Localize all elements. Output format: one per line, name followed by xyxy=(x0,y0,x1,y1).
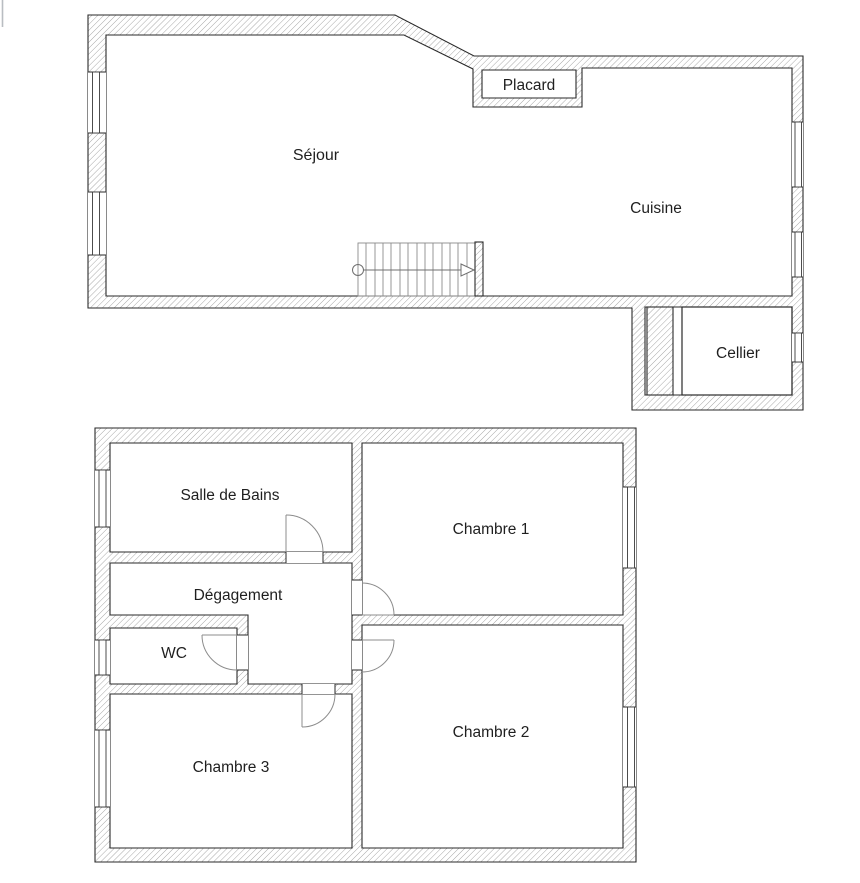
room-label-wc: WC xyxy=(161,645,187,662)
door-swing xyxy=(352,580,394,615)
upper-plan-walls xyxy=(88,15,803,410)
window xyxy=(95,470,110,527)
lower-floor-plan: Salle de Bains Chambre 1 Dégagement WC C… xyxy=(95,428,636,862)
window xyxy=(792,333,803,362)
window xyxy=(95,730,110,807)
window xyxy=(88,192,106,255)
stair-stub-wall xyxy=(475,242,483,296)
door-swing xyxy=(286,515,323,563)
window xyxy=(95,640,110,675)
room-label-cellier: Cellier xyxy=(716,345,760,362)
stair-arrowhead-icon xyxy=(461,264,474,276)
room-label-chambre-2: Chambre 2 xyxy=(453,724,530,741)
room-label-degagement: Dégagement xyxy=(194,587,283,604)
door-swing xyxy=(202,635,248,670)
window xyxy=(623,707,636,787)
room-label-sejour: Séjour xyxy=(293,147,340,164)
window xyxy=(623,487,636,568)
room-label-chambre-1: Chambre 1 xyxy=(453,521,530,538)
window xyxy=(792,122,803,187)
window xyxy=(88,72,106,133)
room-label-chambre-3: Chambre 3 xyxy=(193,759,270,776)
door-swing xyxy=(352,640,394,672)
room-label-placard: Placard xyxy=(503,77,556,94)
staircase xyxy=(353,243,476,296)
window xyxy=(792,232,803,277)
duct-pillar xyxy=(647,307,673,395)
room-label-cuisine: Cuisine xyxy=(630,200,682,217)
door-swing xyxy=(302,684,335,727)
upper-floor-plan: Séjour Cuisine Placard Cellier xyxy=(88,15,803,410)
room-label-salle-de-bains: Salle de Bains xyxy=(180,487,279,504)
floorplan-image: Séjour Cuisine Placard Cellier xyxy=(0,0,860,883)
